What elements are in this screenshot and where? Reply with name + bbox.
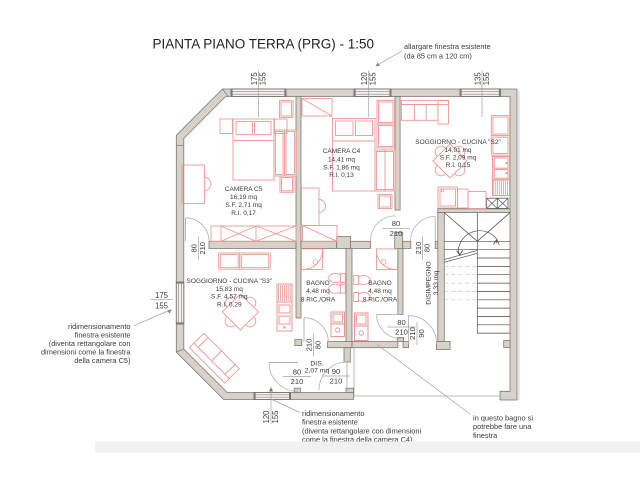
svg-text:175: 175 — [155, 291, 169, 300]
svg-text:14,41 mq: 14,41 mq — [328, 156, 355, 163]
svg-text:4,48 mq: 4,48 mq — [306, 288, 330, 295]
svg-text:155: 155 — [369, 72, 378, 86]
svg-text:80: 80 — [397, 318, 405, 327]
svg-text:210: 210 — [330, 377, 343, 386]
svg-text:ridimensionamento: ridimensionamento — [302, 409, 364, 418]
svg-text:210: 210 — [291, 377, 304, 386]
svg-text:CAMERA C4: CAMERA C4 — [323, 148, 361, 155]
svg-text:8 RIC./ORA: 8 RIC./ORA — [363, 296, 398, 303]
svg-text:120: 120 — [262, 410, 271, 424]
svg-text:in questo bagno si: in questo bagno si — [473, 413, 533, 422]
svg-text:3,33 mq: 3,33 mq — [433, 271, 440, 296]
svg-text:potrebbe fare una: potrebbe fare una — [473, 422, 532, 431]
svg-text:14,01 mq: 14,01 mq — [444, 147, 471, 154]
svg-text:DISIMPEGNO: DISIMPEGNO — [426, 261, 433, 304]
svg-text:8 RIC./ORA: 8 RIC./ORA — [301, 296, 336, 303]
svg-text:S.F. 2,71 mq: S.F. 2,71 mq — [225, 202, 262, 209]
svg-text:S.F. 1,86 mq: S.F. 1,86 mq — [323, 164, 360, 171]
svg-text:90: 90 — [417, 329, 426, 337]
svg-text:SOGGIORNO - CUCINA "S2": SOGGIORNO - CUCINA "S2" — [415, 139, 501, 146]
svg-text:80: 80 — [422, 244, 431, 252]
svg-text:allargare finestra esistente: allargare finestra esistente — [404, 42, 491, 51]
svg-text:finestra esistente: finestra esistente — [302, 418, 358, 427]
svg-text:210: 210 — [390, 229, 403, 238]
svg-text:155: 155 — [259, 72, 268, 86]
svg-text:15,83 mq: 15,83 mq — [216, 286, 243, 293]
svg-text:R.I. 0,17: R.I. 0,17 — [231, 210, 256, 217]
svg-text:R.I. 0,13: R.I. 0,13 — [329, 172, 354, 179]
svg-text:155: 155 — [271, 410, 280, 424]
svg-text:16,19 mq: 16,19 mq — [230, 194, 257, 201]
svg-text:2,07 mq: 2,07 mq — [305, 368, 330, 375]
svg-text:80: 80 — [313, 341, 322, 349]
svg-text:(diventa rettangolare con dime: (diventa rettangolare con dimensioni — [302, 426, 421, 435]
svg-text:80: 80 — [392, 219, 400, 228]
svg-text:R.I. 0,29: R.I. 0,29 — [217, 301, 242, 308]
svg-text:210: 210 — [395, 328, 408, 337]
svg-text:BAGNO: BAGNO — [306, 280, 329, 287]
svg-text:S.F. 4,57 mq: S.F. 4,57 mq — [211, 294, 248, 301]
svg-text:R.I. 0,15: R.I. 0,15 — [446, 162, 471, 169]
svg-text:PIANTA PIANO TERRA (PRG) - 1:5: PIANTA PIANO TERRA (PRG) - 1:50 — [153, 37, 375, 52]
svg-text:210: 210 — [198, 242, 207, 255]
svg-text:90: 90 — [332, 367, 340, 376]
svg-text:155: 155 — [155, 301, 169, 310]
svg-text:finestra: finestra — [473, 431, 498, 440]
svg-text:CAMERA C5: CAMERA C5 — [225, 186, 263, 193]
svg-text:4,48 mq: 4,48 mq — [368, 288, 392, 295]
svg-text:S.F. 2,09 mq: S.F. 2,09 mq — [440, 155, 477, 162]
svg-text:della camera C5): della camera C5) — [74, 356, 130, 365]
svg-text:155: 155 — [482, 72, 491, 86]
svg-text:BAGNO: BAGNO — [368, 280, 391, 287]
svg-text:80: 80 — [293, 367, 301, 376]
svg-text:SOGGIORNO - CUCINA "S3": SOGGIORNO - CUCINA "S3" — [187, 278, 273, 285]
svg-text:(da 85 cm a 120 cm): (da 85 cm a 120 cm) — [404, 51, 472, 60]
svg-text:DIS.: DIS. — [310, 360, 323, 367]
